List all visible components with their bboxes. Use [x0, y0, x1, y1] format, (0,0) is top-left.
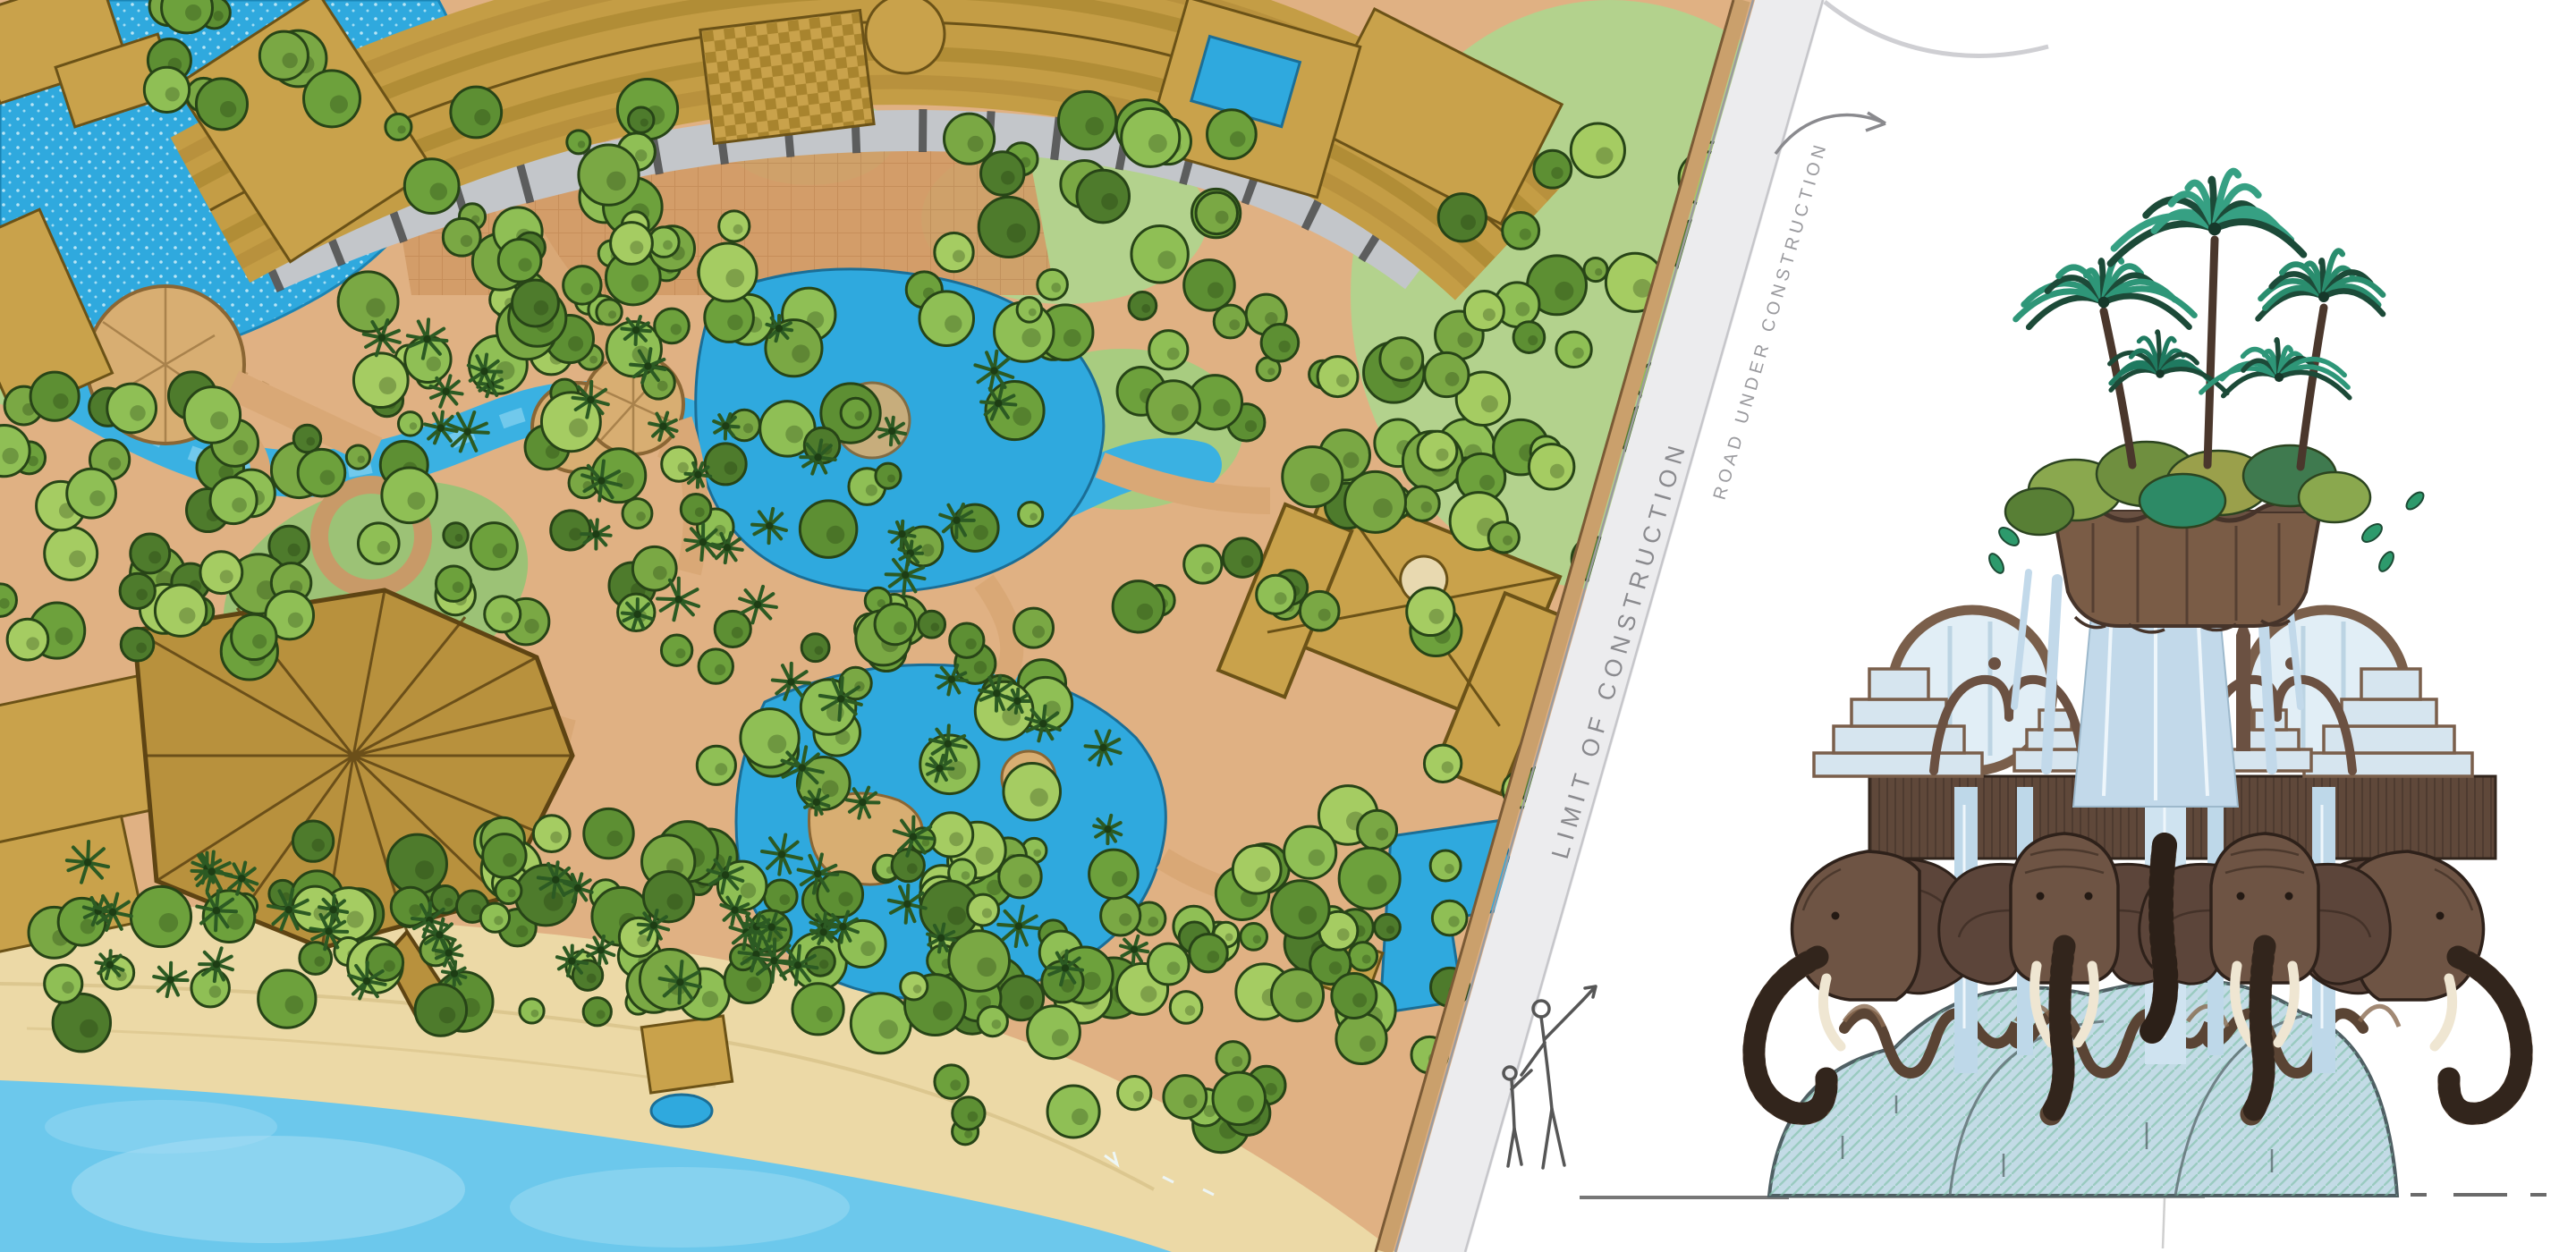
tree-shade	[617, 472, 634, 489]
tree	[715, 611, 750, 647]
tree	[928, 813, 972, 857]
tree-shade	[1362, 954, 1371, 963]
tree-shade	[1515, 302, 1529, 317]
tree-shade	[636, 512, 646, 521]
palm-tree	[208, 867, 215, 875]
tree-shade	[913, 985, 922, 994]
tree-shade	[1148, 917, 1158, 927]
palm-tree	[937, 935, 945, 942]
palm-tree	[794, 961, 801, 969]
tree	[719, 211, 750, 241]
tree-shade	[312, 839, 325, 851]
tree-shade	[518, 258, 531, 271]
tree	[338, 272, 398, 332]
tree-shade	[1265, 1083, 1277, 1095]
tree-shade	[130, 405, 146, 421]
palm-core	[2318, 292, 2329, 302]
tree	[945, 114, 995, 164]
palm-tree	[754, 601, 761, 608]
tree	[1300, 591, 1339, 630]
tree	[1047, 1086, 1099, 1138]
tree-shade	[377, 541, 391, 554]
tree	[258, 970, 316, 1028]
tree-shade	[1483, 309, 1496, 321]
tree-shade	[653, 566, 667, 580]
tree-shade	[1112, 871, 1127, 886]
tree	[643, 872, 693, 922]
tree	[623, 499, 652, 529]
tree-shade	[1253, 935, 1262, 944]
tree-shade	[1051, 283, 1061, 292]
tree-shade	[822, 780, 839, 797]
tree-shade	[785, 426, 803, 444]
palm-tree	[166, 976, 174, 983]
tree-shade	[631, 275, 648, 292]
tree-shade	[1020, 995, 1034, 1010]
tree-shade	[410, 422, 417, 429]
tree	[520, 999, 544, 1023]
tree	[662, 447, 696, 481]
tree-shade	[1085, 117, 1104, 136]
palm-frond	[2215, 222, 2303, 255]
tree-shade	[288, 544, 301, 556]
tree-shade	[732, 627, 743, 639]
palm-tree	[568, 957, 575, 964]
tree	[1113, 581, 1164, 632]
tree	[184, 387, 241, 444]
palm-tree	[775, 325, 783, 332]
tree-shade	[80, 1019, 98, 1038]
tree	[1058, 91, 1115, 148]
tree-shade	[1083, 972, 1101, 990]
tree-shade	[976, 847, 994, 865]
palm-tree	[1099, 744, 1106, 751]
tree	[851, 994, 911, 1053]
tree-shade	[1707, 436, 1723, 453]
tree-shade	[931, 622, 940, 631]
tree-shade	[227, 913, 243, 929]
tree	[583, 998, 611, 1026]
tree-shade	[415, 860, 434, 879]
tree	[1438, 194, 1486, 241]
tree-shade	[366, 298, 385, 317]
tree	[968, 894, 999, 926]
tree-shade	[1213, 399, 1230, 416]
tree-shade	[695, 507, 705, 517]
ground-line	[1580, 1195, 2565, 1248]
tree	[1196, 192, 1237, 233]
tree	[382, 468, 437, 523]
tree-shade	[210, 411, 228, 429]
tree-shade	[667, 893, 683, 909]
tree-shade	[568, 336, 583, 351]
palm-tree	[778, 850, 785, 858]
tree-shade	[1278, 341, 1290, 352]
tree	[1430, 850, 1461, 881]
palm-tree	[378, 334, 386, 341]
tree	[1164, 1076, 1207, 1119]
tree-shade	[982, 908, 992, 918]
tree	[1488, 522, 1519, 553]
tree	[1375, 914, 1401, 940]
tree	[387, 834, 446, 893]
tree	[1380, 338, 1423, 381]
tree-shade	[516, 926, 528, 937]
tree-shade	[53, 393, 68, 409]
palm-tree	[442, 388, 449, 395]
palm-tree	[634, 611, 641, 618]
tree-shade	[1167, 961, 1181, 975]
tree	[533, 816, 570, 852]
tree	[1190, 934, 1227, 971]
palm-tree	[674, 596, 682, 603]
tree	[1432, 901, 1467, 935]
tree	[1534, 150, 1572, 188]
tree	[210, 477, 257, 523]
tree-shade	[1019, 874, 1032, 887]
tree-shade	[746, 977, 761, 992]
tree-shade	[1021, 328, 1040, 347]
tree-shade	[283, 53, 298, 68]
palm-tree	[676, 978, 683, 986]
tree-shade	[185, 4, 201, 21]
tree-shade	[179, 607, 195, 623]
tree-shade	[949, 832, 963, 846]
tree-shade	[1309, 850, 1326, 867]
tree	[1089, 850, 1139, 899]
tree	[1184, 260, 1235, 311]
tree	[1529, 444, 1573, 489]
tree-shade	[1185, 1005, 1195, 1015]
palm-tree	[766, 522, 773, 529]
tree-shade	[1310, 473, 1329, 492]
tree	[1686, 509, 1732, 554]
tree-shade	[1461, 215, 1476, 230]
palm-tree	[84, 859, 91, 866]
tree	[584, 808, 633, 858]
palm-tree	[995, 400, 1002, 407]
palm-tree	[839, 923, 846, 930]
tree-shade	[165, 87, 180, 101]
tree	[45, 965, 82, 1002]
tree-shade	[2, 448, 18, 464]
tree	[45, 528, 97, 580]
tree-shade	[1230, 131, 1246, 148]
tree-shade	[379, 377, 396, 394]
tree-shade	[1245, 420, 1257, 432]
tree	[1148, 943, 1189, 985]
tree-shade	[608, 310, 616, 318]
tree	[191, 969, 229, 1006]
tree-shade	[1329, 961, 1342, 974]
tree-shade	[461, 235, 472, 247]
palm-tree	[597, 946, 604, 953]
tree	[1223, 538, 1261, 577]
tree	[800, 501, 857, 558]
tree	[1122, 108, 1180, 166]
tree-shade	[640, 118, 648, 126]
palm-core	[2098, 297, 2110, 309]
tree-shade	[725, 269, 744, 288]
tree-shade	[494, 916, 503, 925]
tree	[444, 523, 468, 547]
palm-tree	[329, 906, 336, 913]
tree	[1077, 170, 1130, 223]
tree	[801, 634, 829, 662]
tree-shade	[921, 544, 934, 556]
tree-shade	[968, 136, 984, 152]
tree-shade	[607, 831, 623, 847]
tree-shade	[1072, 1109, 1089, 1126]
tree	[1513, 322, 1545, 353]
tree	[1118, 1076, 1151, 1109]
palm-frond	[2224, 374, 2279, 396]
palm-tree	[592, 530, 599, 537]
tree-shade	[866, 485, 877, 496]
tree-shade	[409, 904, 421, 917]
palm-tree	[213, 907, 220, 914]
tree-shade	[767, 734, 786, 753]
tree	[1584, 258, 1607, 282]
palm-core	[2275, 373, 2284, 382]
tree	[30, 372, 79, 420]
tree	[1284, 826, 1336, 878]
palm-tree	[898, 530, 905, 537]
tree-shade	[1140, 986, 1157, 1002]
tree	[1257, 575, 1295, 613]
tree-shade	[306, 437, 315, 446]
tree-shade	[285, 995, 304, 1014]
tree	[1283, 447, 1343, 507]
tree-shade	[741, 883, 756, 898]
tree-shade	[860, 941, 876, 956]
tree	[451, 87, 502, 138]
tree-shade	[964, 1130, 972, 1138]
tree	[875, 604, 915, 644]
palm-tree	[423, 335, 430, 343]
tree	[346, 445, 369, 469]
palm-tree	[993, 689, 1000, 697]
tree-shade	[159, 913, 179, 933]
tree-shade	[1400, 357, 1413, 370]
tree	[1332, 974, 1377, 1019]
tree-shade	[1457, 333, 1472, 348]
tree-shade	[1479, 475, 1495, 490]
tree-shade	[1275, 592, 1287, 605]
palm-tree	[699, 538, 707, 546]
tree-shade	[136, 588, 148, 600]
tree	[741, 709, 799, 767]
tree	[1336, 1013, 1386, 1063]
palm-tree	[552, 876, 559, 884]
tree-shade	[1201, 562, 1214, 574]
tree-shade	[347, 911, 364, 928]
tree-shade	[69, 550, 86, 567]
palm-tree	[819, 928, 826, 935]
tree	[304, 71, 360, 127]
tree	[480, 903, 509, 932]
tree	[1170, 992, 1202, 1024]
tree	[1038, 269, 1068, 300]
tree	[579, 145, 639, 205]
tree	[1571, 123, 1624, 177]
tree-shade	[1183, 1095, 1197, 1108]
palm-tree	[953, 517, 960, 524]
tree-shade	[779, 894, 790, 905]
tree-shade	[439, 1007, 455, 1023]
tree	[661, 635, 691, 665]
tree-shade	[209, 986, 222, 998]
tree-shade	[678, 462, 689, 473]
tree-shade	[962, 871, 970, 880]
tree-shade	[569, 419, 588, 437]
tree-shade	[1295, 992, 1312, 1009]
tree	[398, 412, 422, 436]
tree-shade	[819, 960, 828, 969]
tree-shade	[1216, 211, 1229, 224]
tree	[1129, 292, 1157, 320]
palm-tree	[1062, 964, 1069, 971]
tree	[818, 872, 863, 918]
tree-shade	[232, 497, 247, 512]
tree	[611, 223, 653, 265]
tree-shade	[427, 357, 441, 371]
tree	[386, 114, 411, 140]
tree	[404, 159, 459, 214]
tree	[1241, 924, 1267, 951]
tree	[1214, 305, 1247, 338]
palm-tree	[767, 923, 775, 930]
palm-tree	[106, 961, 114, 969]
lattice-roof	[700, 11, 874, 144]
tree-shade	[1225, 933, 1233, 941]
tree-shade	[1445, 864, 1454, 874]
tree-shade	[663, 241, 673, 250]
tree	[935, 233, 973, 271]
palm-tree	[644, 362, 651, 369]
tree-shade	[1063, 329, 1081, 347]
palm-tree	[799, 764, 806, 771]
tree	[699, 243, 757, 301]
tree-shade	[606, 172, 626, 191]
tree-shade	[894, 622, 907, 635]
tree	[1101, 896, 1140, 935]
tree	[979, 197, 1038, 257]
tree-shade	[635, 149, 647, 161]
tree	[655, 309, 690, 343]
tree	[1418, 431, 1457, 470]
tree-shade	[26, 637, 39, 650]
tree-shade	[288, 613, 303, 628]
tree	[121, 628, 154, 661]
tree-shade	[817, 1006, 833, 1022]
palm-crown	[2016, 172, 2384, 398]
tree	[367, 944, 403, 981]
tree-shade	[854, 411, 864, 421]
tree-shade	[977, 957, 996, 977]
tree-shade	[815, 646, 824, 655]
tree	[705, 444, 746, 485]
tree	[792, 984, 843, 1035]
tree	[298, 449, 345, 496]
tree-shade	[1265, 312, 1277, 325]
tree-shade	[1299, 906, 1318, 925]
tree-shade	[1566, 914, 1583, 931]
palm-tree	[659, 423, 666, 430]
palm-frond	[2110, 224, 2215, 263]
tree-shade	[1006, 224, 1025, 242]
tree-shade	[1337, 928, 1350, 941]
palm-tree	[1039, 720, 1046, 727]
tree-shade	[569, 528, 581, 540]
tree	[1149, 331, 1188, 369]
palm-tree	[903, 901, 911, 908]
tree-shade	[671, 324, 682, 334]
palm-tree	[436, 931, 443, 938]
palm-tree	[731, 906, 738, 913]
tree-shade	[55, 627, 73, 645]
tree-shade	[1133, 1091, 1144, 1102]
tree	[953, 1097, 985, 1129]
tree-shade	[826, 526, 844, 544]
tree-shade	[1207, 282, 1224, 298]
tree-shade	[89, 490, 106, 506]
tree-shade	[1052, 1029, 1069, 1046]
palm-tree	[285, 906, 292, 913]
tree-shade	[1318, 609, 1331, 622]
tree-shade	[1685, 549, 1699, 563]
tree-shade	[358, 456, 365, 463]
tree	[563, 266, 601, 304]
tree-shade	[1740, 542, 1754, 556]
tree-shade	[1368, 875, 1387, 894]
tree-shade	[62, 982, 73, 994]
palm-tree	[238, 875, 245, 882]
tree-shade	[531, 1010, 539, 1018]
tree-shade	[1555, 282, 1573, 300]
tree-shade	[702, 991, 718, 1007]
tree	[107, 384, 157, 433]
tree	[1719, 522, 1764, 567]
tree-shade	[1428, 609, 1444, 624]
rendering-canvas: LIMIT OF CONSTRUCTION ROAD UNDER CONSTRU…	[0, 0, 2576, 1252]
tree-shade	[727, 315, 742, 330]
tree-shade	[1137, 604, 1153, 620]
tree-shade	[947, 907, 966, 926]
tree	[1233, 845, 1281, 893]
tree-shade	[1232, 1056, 1242, 1067]
tree	[353, 353, 408, 408]
tree	[496, 878, 521, 904]
tree	[567, 131, 590, 154]
tree	[1184, 546, 1222, 583]
tree-shade	[1376, 828, 1388, 841]
tree	[1216, 1042, 1250, 1075]
tree-shade	[715, 664, 725, 675]
tree-shade	[550, 832, 562, 843]
palm-tree	[650, 921, 657, 928]
tree	[876, 463, 901, 488]
tree	[259, 31, 308, 80]
tree-shade	[1148, 134, 1167, 153]
tree	[1261, 324, 1299, 361]
tree-shade	[1101, 193, 1118, 210]
palm-tree	[945, 740, 952, 748]
tree-shade	[108, 457, 121, 469]
tree	[432, 886, 460, 914]
tree	[144, 67, 189, 112]
tree-shade	[597, 1010, 606, 1019]
